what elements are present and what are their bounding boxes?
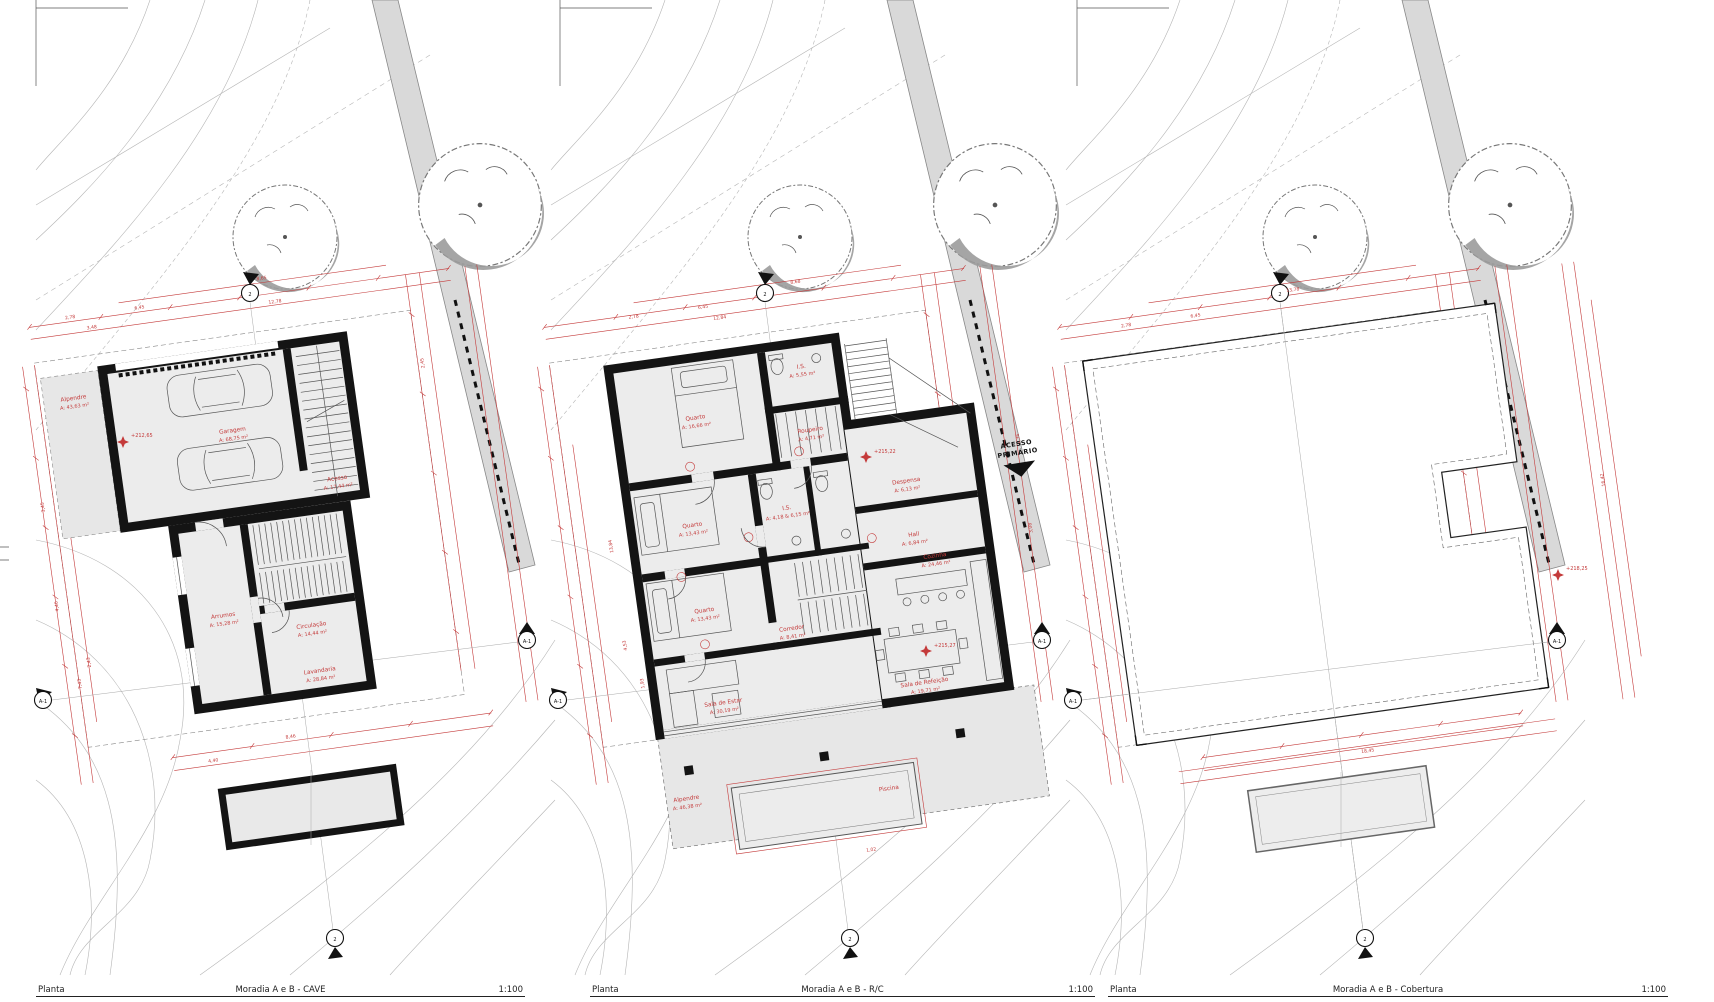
svg-text:4,53: 4,53 [622,640,629,651]
drawing-title: Moradia A e B - R/C [590,985,1095,995]
section-marker-label: A-1 [554,699,562,705]
title-block-cobertura: Planta Moradia A e B - Cobertura 1:100 [1108,981,1668,997]
floor-plan-cave: Alpendre A: 43,63 m² Garagem A: 68,75 m²… [13,255,532,943]
drawing-title: Moradia A e B - CAVE [36,985,525,995]
elevation-marker: +218,25 [1552,566,1588,581]
drawing-scale: 1:100 [1642,985,1667,995]
svg-text:+212,65: +212,65 [131,433,153,439]
svg-text:4,46: 4,46 [54,601,61,612]
section-marker-label: 2 [848,937,851,943]
section-marker-label: 2 [1278,292,1281,298]
drawing-sheet: .thin{stroke:#555;stroke-width:0.7;fill:… [0,0,1714,1002]
svg-text:8,46: 8,46 [285,733,296,740]
room-label: I.S. [782,505,792,512]
svg-text:6,45: 6,45 [134,304,145,311]
section-marker-label: A-1 [523,639,531,645]
drawing-title: Moradia A e B - Cobertura [1108,985,1668,995]
svg-text:4,40: 4,40 [208,757,219,764]
floor-plan-cobertura: 2,78 6,45 13,78 16,42 18,45 +218,25 2 2 … [1069,246,1650,943]
svg-text:2,78: 2,78 [1121,322,1132,329]
site-plans-drawing: .thin{stroke:#555;stroke-width:0.7;fill:… [0,0,1714,1002]
section-marker-label: A-1 [1038,639,1046,645]
section-marker-label: A-1 [1069,699,1077,705]
svg-text:+218,25: +218,25 [1566,566,1588,572]
svg-text:16,42: 16,42 [1599,473,1607,487]
svg-text:+215,22: +215,22 [874,449,896,455]
svg-text:12,78: 12,78 [268,298,282,306]
drawing-scale: 1:100 [499,985,524,995]
svg-text:2,78: 2,78 [628,313,639,320]
section-marker-label: 2 [1363,937,1366,943]
svg-text:2,43: 2,43 [86,657,93,668]
svg-text:6,45: 6,45 [698,304,709,311]
svg-text:1,93: 1,93 [639,678,646,689]
svg-text:+215,27: +215,27 [934,643,956,649]
roof-outline: 2,78 6,45 13,78 16,42 18,45 [1077,246,1650,789]
svg-text:13,84: 13,84 [608,539,616,553]
svg-text:2,45: 2,45 [419,357,426,368]
svg-text:13,78: 13,78 [1286,286,1300,294]
svg-text:1,02: 1,02 [866,847,877,854]
title-block-cave: Planta Moradia A e B - CAVE 1:100 [36,981,525,997]
svg-text:3,45: 3,45 [40,502,47,513]
svg-text:7,43: 7,43 [77,678,84,689]
section-marker-label: 2 [763,292,766,298]
section-marker-label: A-1 [1553,639,1561,645]
drawing-scale: 1:100 [1069,985,1094,995]
svg-text:2,78: 2,78 [65,314,76,321]
section-marker-label: 2 [333,937,336,943]
title-block-rc: Planta Moradia A e B - R/C 1:100 [590,981,1095,997]
room-label: I.S. [796,364,806,371]
section-marker-label: A-1 [39,699,47,705]
section-marker-label: 2 [248,292,251,298]
svg-text:6,45: 6,45 [1190,312,1201,319]
